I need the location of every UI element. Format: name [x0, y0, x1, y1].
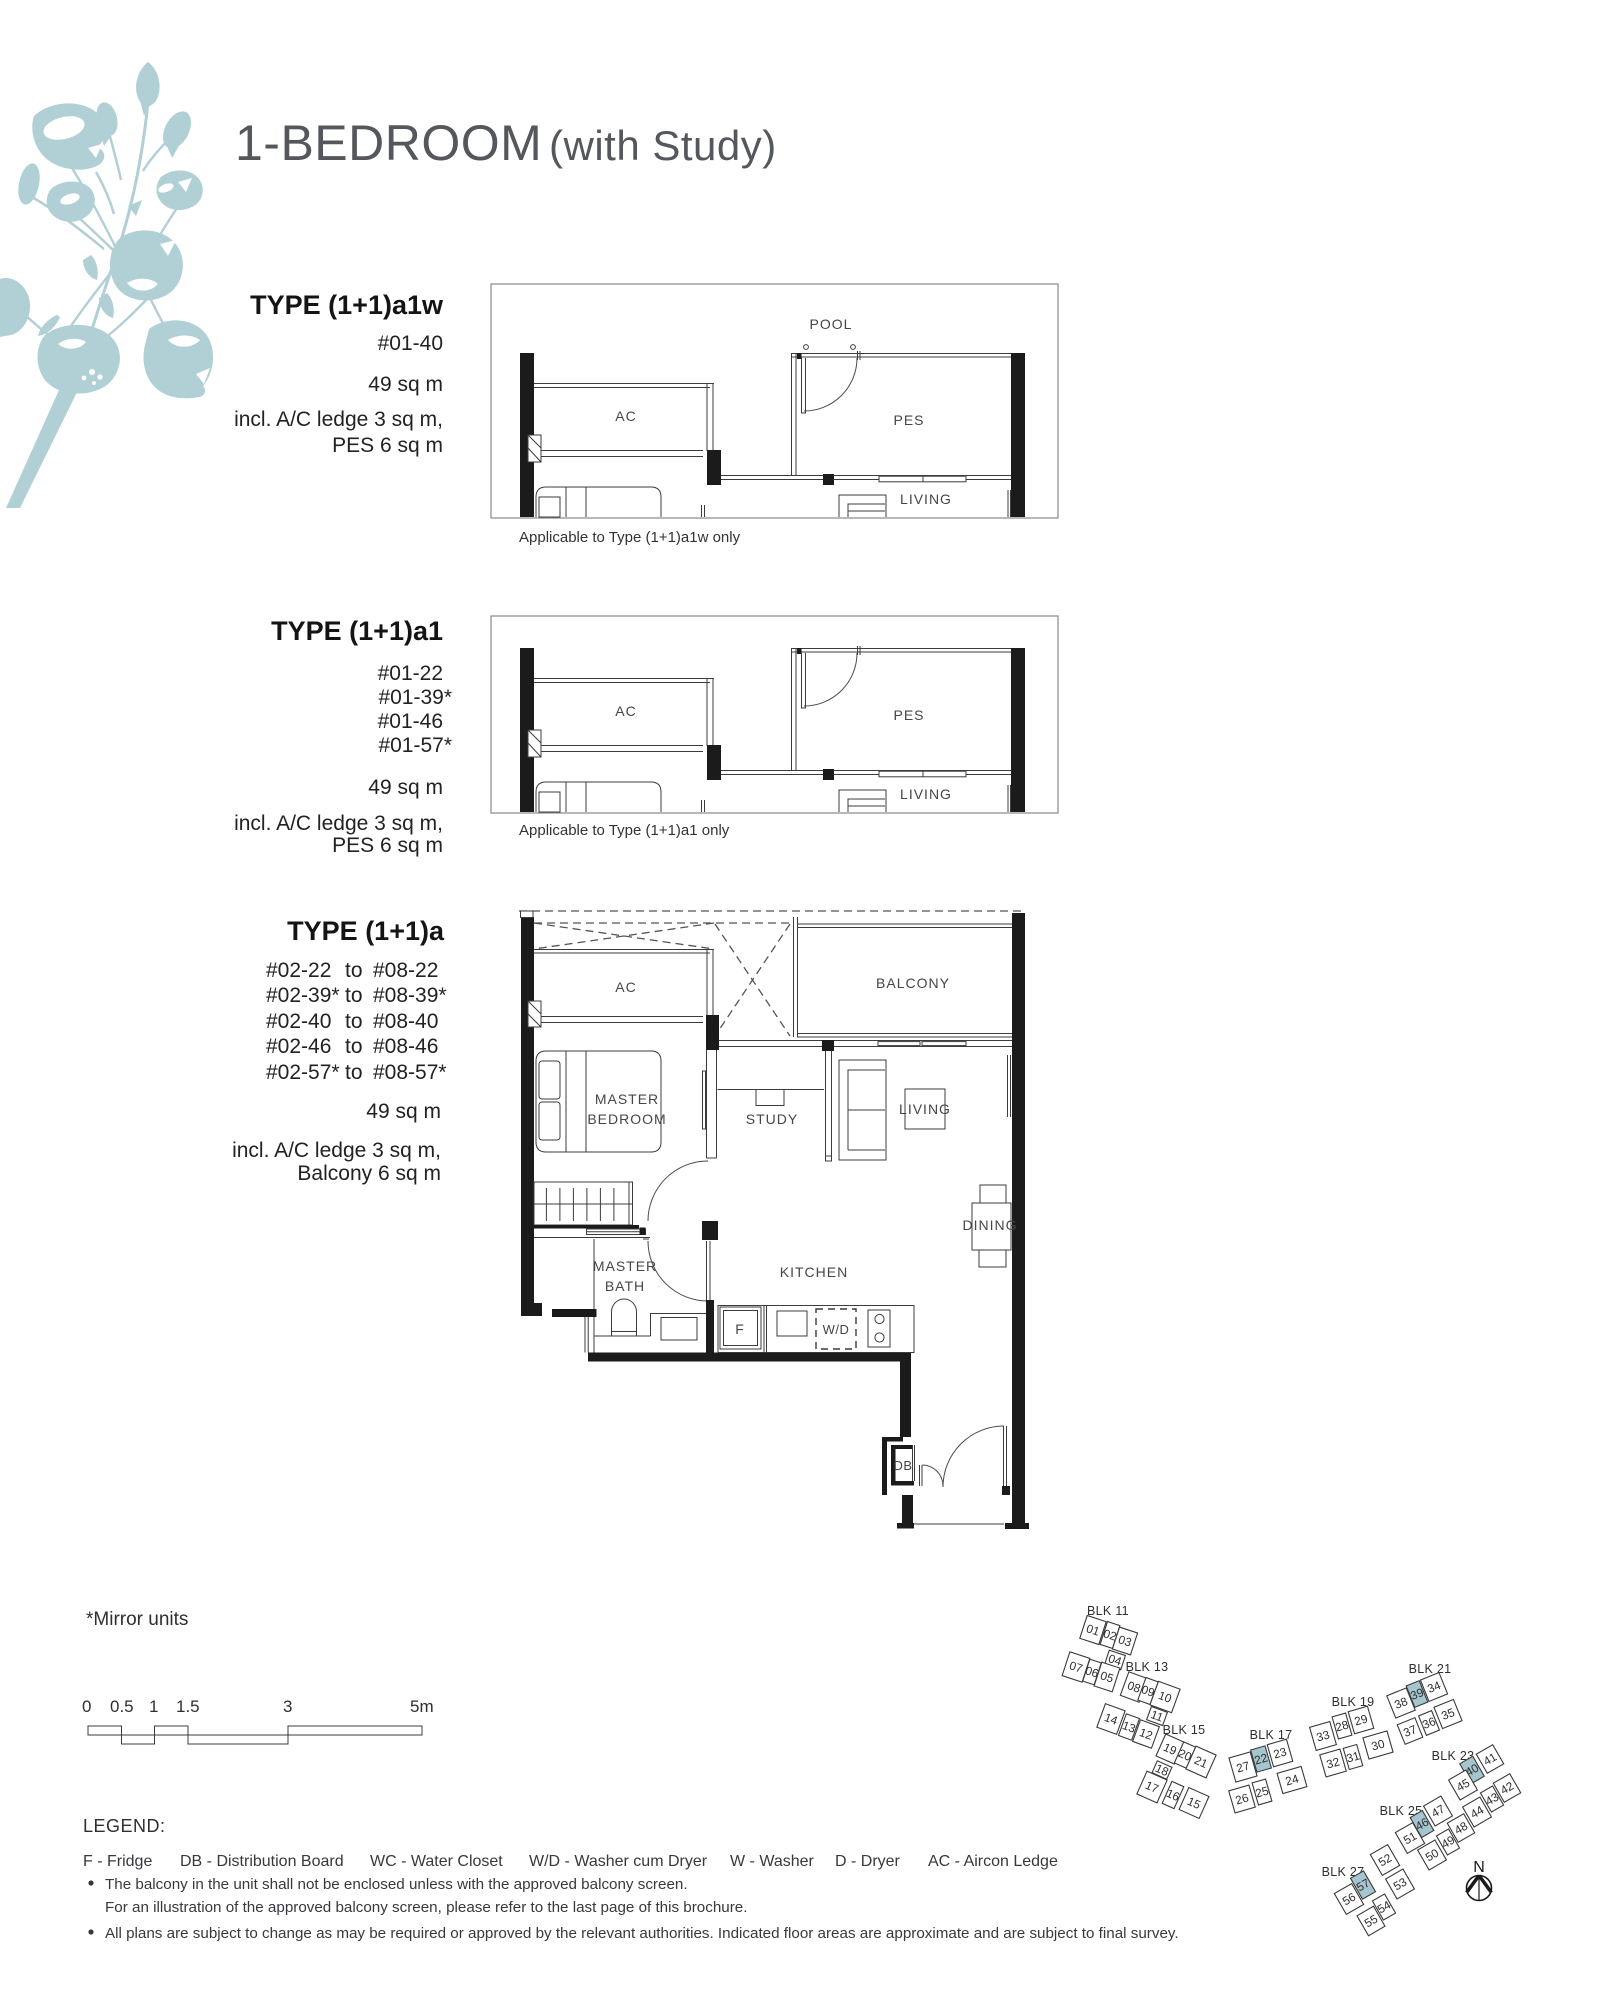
svg-text:DB: DB — [893, 1458, 912, 1473]
svg-text:PES 6 sq m: PES 6 sq m — [332, 834, 443, 857]
svg-text:#08-46: #08-46 — [373, 1035, 438, 1058]
svg-text:KITCHEN: KITCHEN — [780, 1264, 848, 1280]
svg-text:W/D: W/D — [823, 1322, 850, 1337]
svg-text:incl. A/C ledge 3 sq m,: incl. A/C ledge 3 sq m, — [232, 1139, 441, 1162]
svg-text:LIVING: LIVING — [899, 1101, 951, 1117]
svg-text:#02-22: #02-22 — [266, 959, 331, 982]
svg-text:TYPE (1+1)a1w: TYPE (1+1)a1w — [250, 290, 444, 320]
svg-text:1.5: 1.5 — [176, 1697, 200, 1716]
svg-text:AC: AC — [615, 408, 636, 424]
svg-text:PES: PES — [893, 412, 924, 428]
svg-text:Applicable to Type (1+1)a1 onl: Applicable to Type (1+1)a1 only — [519, 822, 730, 839]
svg-text:incl. A/C ledge 3 sq m,: incl. A/C ledge 3 sq m, — [234, 408, 443, 431]
svg-text:#01-57*: #01-57* — [378, 734, 452, 757]
svg-text:AC: AC — [615, 979, 636, 995]
svg-text:AC: AC — [615, 703, 636, 719]
svg-text:BEDROOM: BEDROOM — [587, 1111, 666, 1127]
svg-text:PES 6 sq m: PES 6 sq m — [332, 434, 443, 457]
svg-text:to: to — [345, 1010, 363, 1033]
svg-text:TYPE (1+1)a: TYPE (1+1)a — [287, 916, 445, 946]
svg-text:#01-46: #01-46 — [378, 710, 443, 733]
svg-text:BALCONY: BALCONY — [876, 975, 950, 991]
svg-text:#02-40: #02-40 — [266, 1010, 331, 1033]
svg-text:0.5: 0.5 — [110, 1697, 134, 1716]
svg-text:to: to — [345, 1035, 363, 1058]
svg-text:to: to — [345, 959, 363, 982]
svg-text:#01-22: #01-22 — [378, 662, 443, 685]
svg-text:#01-40: #01-40 — [378, 332, 443, 355]
svg-text:BLK 11: BLK 11 — [1087, 1604, 1129, 1618]
svg-text:3: 3 — [283, 1697, 292, 1716]
svg-text:MASTER: MASTER — [595, 1091, 659, 1107]
svg-text:#02-46: #02-46 — [266, 1035, 331, 1058]
svg-text:1: 1 — [149, 1697, 158, 1716]
svg-text:All plans are subject to chang: All plans are subject to change as may b… — [105, 1925, 1179, 1942]
svg-text:BLK 13: BLK 13 — [1126, 1660, 1169, 1674]
svg-text:BLK 21: BLK 21 — [1409, 1662, 1452, 1676]
svg-text:#08-40: #08-40 — [373, 1010, 438, 1033]
svg-text:LEGEND:: LEGEND: — [83, 1816, 166, 1836]
svg-text:For an illustration of the app: For an illustration of the approved balc… — [105, 1899, 747, 1916]
svg-text:#08-57*: #08-57* — [373, 1061, 447, 1084]
svg-text:Applicable to Type (1+1)a1w on: Applicable to Type (1+1)a1w only — [519, 529, 741, 546]
svg-text:W - Washer: W - Washer — [730, 1853, 815, 1870]
svg-text:1-BEDROOM: 1-BEDROOM — [235, 115, 542, 171]
svg-text:incl. A/C ledge 3 sq m,: incl. A/C ledge 3 sq m, — [234, 812, 443, 835]
svg-text:LIVING: LIVING — [900, 786, 952, 802]
svg-text:5m: 5m — [410, 1697, 434, 1716]
svg-text:49 sq m: 49 sq m — [368, 776, 443, 799]
svg-text:DINING: DINING — [963, 1217, 1018, 1233]
svg-text:#02-57*: #02-57* — [266, 1061, 340, 1084]
svg-text:F: F — [735, 1321, 745, 1337]
svg-text:F - Fridge: F - Fridge — [83, 1853, 152, 1870]
svg-text:POOL: POOL — [810, 316, 853, 332]
svg-text:#01-39*: #01-39* — [378, 686, 452, 709]
svg-text:49 sq m: 49 sq m — [368, 373, 443, 396]
svg-text:PES: PES — [893, 707, 924, 723]
svg-text:N: N — [1473, 1859, 1485, 1876]
svg-text:49 sq m: 49 sq m — [366, 1100, 441, 1123]
svg-text:Balcony 6 sq m: Balcony 6 sq m — [297, 1162, 441, 1185]
svg-text:D - Dryer: D - Dryer — [835, 1853, 901, 1870]
svg-text:MASTER: MASTER — [593, 1258, 657, 1274]
svg-text:TYPE (1+1)a1: TYPE (1+1)a1 — [271, 616, 443, 646]
svg-text:LIVING: LIVING — [900, 491, 952, 507]
svg-text:#08-22: #08-22 — [373, 959, 438, 982]
svg-text:DB - Distribution Board: DB - Distribution Board — [180, 1853, 344, 1870]
svg-text:WC - Water Closet: WC - Water Closet — [370, 1853, 503, 1870]
svg-text:*Mirror units: *Mirror units — [86, 1609, 188, 1630]
svg-text:AC - Aircon Ledge: AC - Aircon Ledge — [928, 1853, 1058, 1870]
svg-text:STUDY: STUDY — [746, 1111, 798, 1127]
svg-text:#08-39*: #08-39* — [373, 984, 447, 1007]
svg-text:to: to — [345, 1061, 363, 1084]
svg-text:The balcony in the unit shall: The balcony in the unit shall not be enc… — [105, 1876, 688, 1893]
svg-text:#02-39*: #02-39* — [266, 984, 340, 1007]
svg-text:W/D - Washer cum Dryer: W/D - Washer cum Dryer — [529, 1853, 708, 1870]
svg-text:0: 0 — [82, 1697, 91, 1716]
svg-text:(with Study): (with Study) — [549, 122, 777, 169]
svg-text:BATH: BATH — [605, 1278, 645, 1294]
svg-text:to: to — [345, 984, 363, 1007]
